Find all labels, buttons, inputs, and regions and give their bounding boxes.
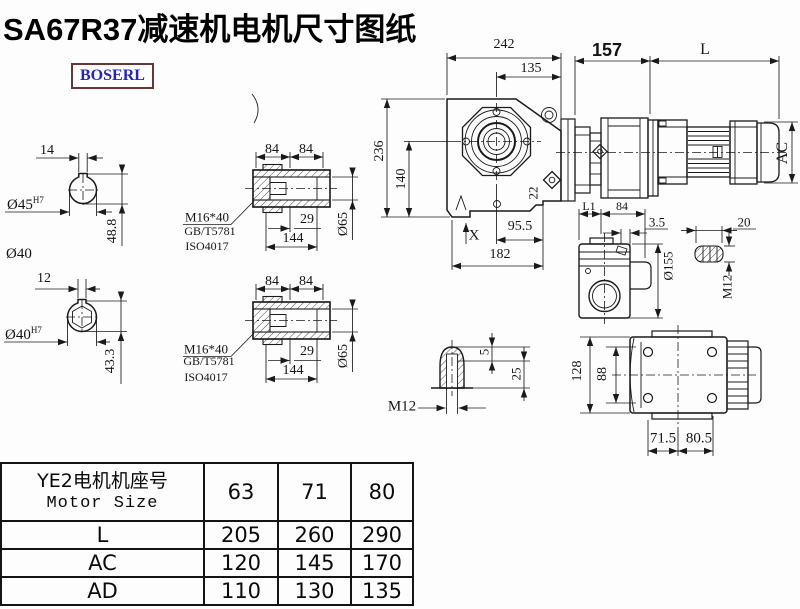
dim-84-side: 84 bbox=[616, 200, 628, 212]
page-title: SA67R37减速机电机尺寸图纸 bbox=[3, 4, 416, 49]
size-71: 71 bbox=[278, 463, 351, 521]
dim-84b-top: 84 bbox=[299, 143, 313, 157]
bore-fit: H7 bbox=[31, 325, 42, 335]
cell-AD-71: 130 bbox=[278, 577, 351, 605]
row-label-L: L bbox=[1, 521, 204, 549]
dim-128: 128 bbox=[571, 361, 585, 382]
motor-size-table: YE2电机机座号 Motor Size 63 71 80 L 205 260 2… bbox=[0, 462, 414, 606]
cell-AC-63: 120 bbox=[204, 549, 278, 577]
key-detail bbox=[681, 226, 756, 276]
dim-height-236: 236 bbox=[373, 141, 387, 162]
size-63: 63 bbox=[204, 463, 278, 521]
dim-bore-45: Ø45H7 bbox=[7, 196, 44, 213]
standard-iso-top: ISO4017 bbox=[185, 240, 228, 252]
header-en: Motor Size bbox=[2, 493, 203, 515]
bore-value: Ø40 bbox=[5, 327, 31, 343]
cell-L-63: 205 bbox=[204, 521, 278, 549]
dim-outer-dia-40: Ø40 bbox=[6, 247, 32, 262]
dim-dia65-top: Ø65 bbox=[337, 212, 351, 236]
dim-144-top: 144 bbox=[283, 232, 304, 246]
dim-L1: L1 bbox=[582, 200, 595, 212]
table-row-AD: AD 110 130 135 bbox=[1, 577, 413, 605]
reference-arc bbox=[252, 94, 258, 123]
row-label-AD: AD bbox=[1, 577, 204, 605]
dim-width-242: 242 bbox=[494, 38, 515, 52]
row-label-AC: AC bbox=[1, 549, 204, 577]
table-row-L: L 205 260 290 bbox=[1, 521, 413, 549]
bore-value: Ø45 bbox=[7, 197, 33, 213]
cell-AD-63: 110 bbox=[204, 577, 278, 605]
dim-keyway-width-40: 12 bbox=[37, 272, 51, 286]
dim-motor-dia-AC: AC bbox=[775, 142, 791, 164]
thread-m12-plug: M12 bbox=[388, 400, 416, 415]
thread-m12-side: M12 bbox=[721, 275, 734, 300]
dim-gear-length-157: 157 bbox=[592, 41, 622, 59]
cell-AD-80: 135 bbox=[351, 577, 413, 605]
dim-center-height-140: 140 bbox=[395, 169, 409, 190]
hollow-shaft-bottom bbox=[183, 284, 358, 383]
table-header-row: YE2电机机座号 Motor Size 63 71 80 bbox=[1, 463, 413, 521]
dim-84a-bottom: 84 bbox=[265, 275, 279, 289]
dim-keyway-height-45: 48.8 bbox=[106, 219, 120, 244]
dim-80-5: 80.5 bbox=[686, 432, 712, 447]
dim-84b-bottom: 84 bbox=[299, 275, 313, 289]
dim-95-5: 95.5 bbox=[508, 220, 533, 234]
table-row-AC: AC 120 145 170 bbox=[1, 549, 413, 577]
brand-logo: BOSERL bbox=[71, 63, 154, 89]
dim-keyway-height-40: 43.3 bbox=[104, 349, 118, 374]
dim-plug-5: 5 bbox=[478, 349, 491, 356]
dim-135: 135 bbox=[521, 62, 542, 76]
cell-AC-71: 145 bbox=[278, 549, 351, 577]
dim-3-5: 3.5 bbox=[649, 216, 665, 229]
cell-L-71: 260 bbox=[278, 521, 351, 549]
standard-iso-bottom: ISO4017 bbox=[184, 371, 227, 383]
dim-29-bottom: 29 bbox=[300, 345, 314, 359]
drawing-page: SA67R37减速机电机尺寸图纸 BOSERL 14 Ø45H7 48.8 Ø4… bbox=[0, 0, 800, 609]
dim-plug-25: 25 bbox=[510, 368, 523, 381]
dim-bore-40: Ø40H7 bbox=[5, 326, 42, 343]
standard-gb-top: GB/T5781 bbox=[184, 225, 235, 237]
standard-gb-bottom: GB/T5781 bbox=[183, 355, 234, 367]
thread-callout-top: M16*40 bbox=[185, 211, 229, 224]
dim-motor-length-L: L bbox=[700, 42, 710, 58]
dim-88: 88 bbox=[596, 367, 610, 381]
motor-assembly-view bbox=[556, 56, 798, 201]
dim-keyway-width-45: 14 bbox=[40, 144, 54, 158]
dim-29-top: 29 bbox=[300, 213, 314, 227]
dim-foot-182: 182 bbox=[490, 248, 511, 262]
dim-key-20: 20 bbox=[738, 216, 751, 229]
dim-flange-dia-155: Ø155 bbox=[662, 252, 675, 281]
size-80: 80 bbox=[351, 463, 413, 521]
dim-plug-22: 22 bbox=[527, 187, 540, 200]
header-cn: YE2电机机座号 bbox=[2, 469, 203, 493]
cell-AC-80: 170 bbox=[351, 549, 413, 577]
marker-x: X bbox=[469, 229, 480, 244]
bore-fit: H7 bbox=[33, 195, 44, 205]
header-motor-size: YE2电机机座号 Motor Size bbox=[1, 463, 204, 521]
dim-144-bottom: 144 bbox=[283, 364, 304, 378]
dim-dia65-bottom: Ø65 bbox=[337, 344, 351, 368]
cell-L-80: 290 bbox=[351, 521, 413, 549]
dim-84a-top: 84 bbox=[265, 143, 279, 157]
dim-71-5: 71.5 bbox=[650, 432, 676, 447]
